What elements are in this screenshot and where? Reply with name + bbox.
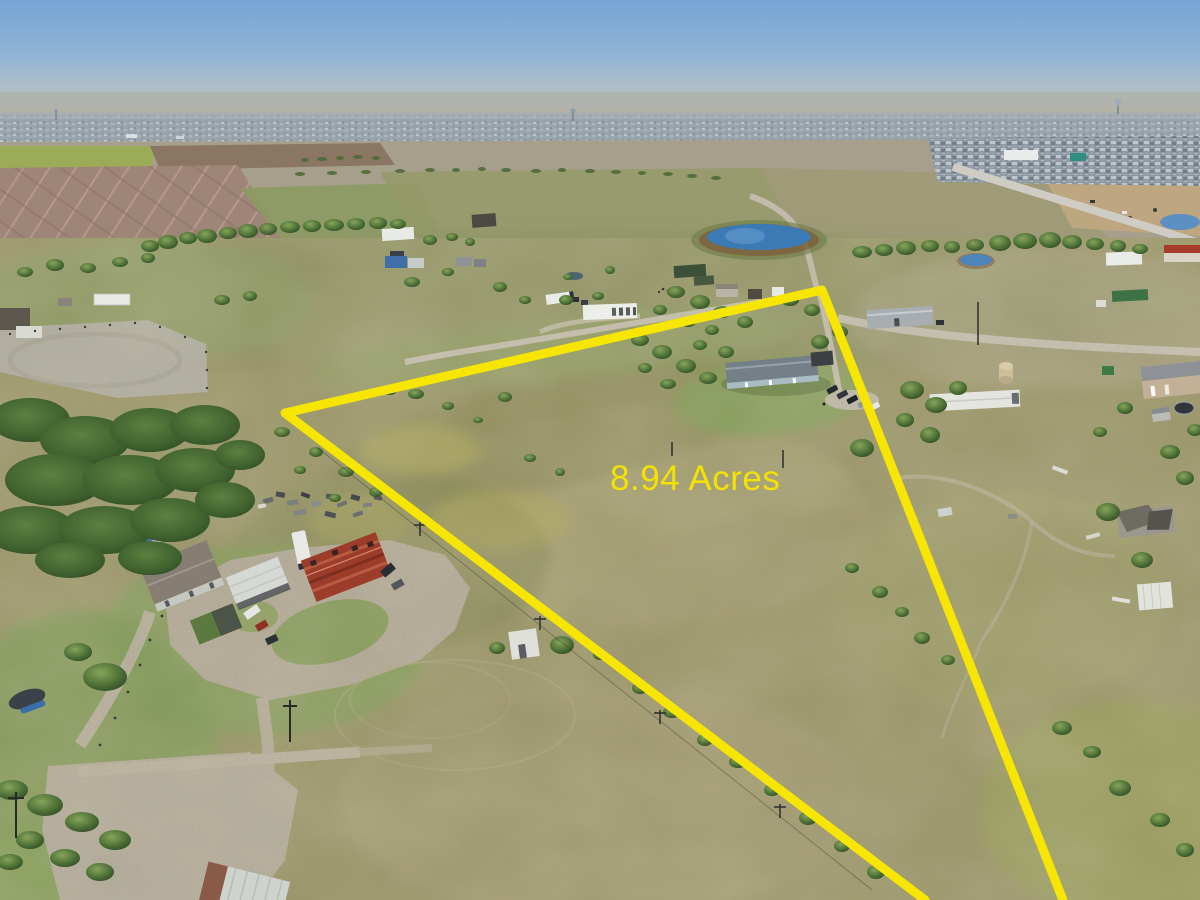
long-white-building: [583, 303, 637, 320]
aerial-photo: 8.94 Acres: [0, 0, 1200, 900]
plowed-field-mauve: [0, 165, 285, 250]
grain-tank: [999, 362, 1013, 384]
green-roof-barn: [674, 264, 707, 278]
white-barn: [382, 227, 415, 241]
new-subdivision: [928, 136, 1200, 186]
landscape-render: [0, 0, 1200, 900]
red-roof-house: [1164, 245, 1200, 262]
white-shed: [1137, 582, 1173, 611]
sky: [0, 0, 1200, 130]
small-white-shed: [508, 628, 540, 660]
white-trailer: [94, 294, 130, 305]
green-shipping-container: [1112, 289, 1149, 302]
trampoline: [1174, 402, 1194, 414]
blue-container: [385, 256, 407, 268]
tan-house: [1140, 361, 1200, 399]
